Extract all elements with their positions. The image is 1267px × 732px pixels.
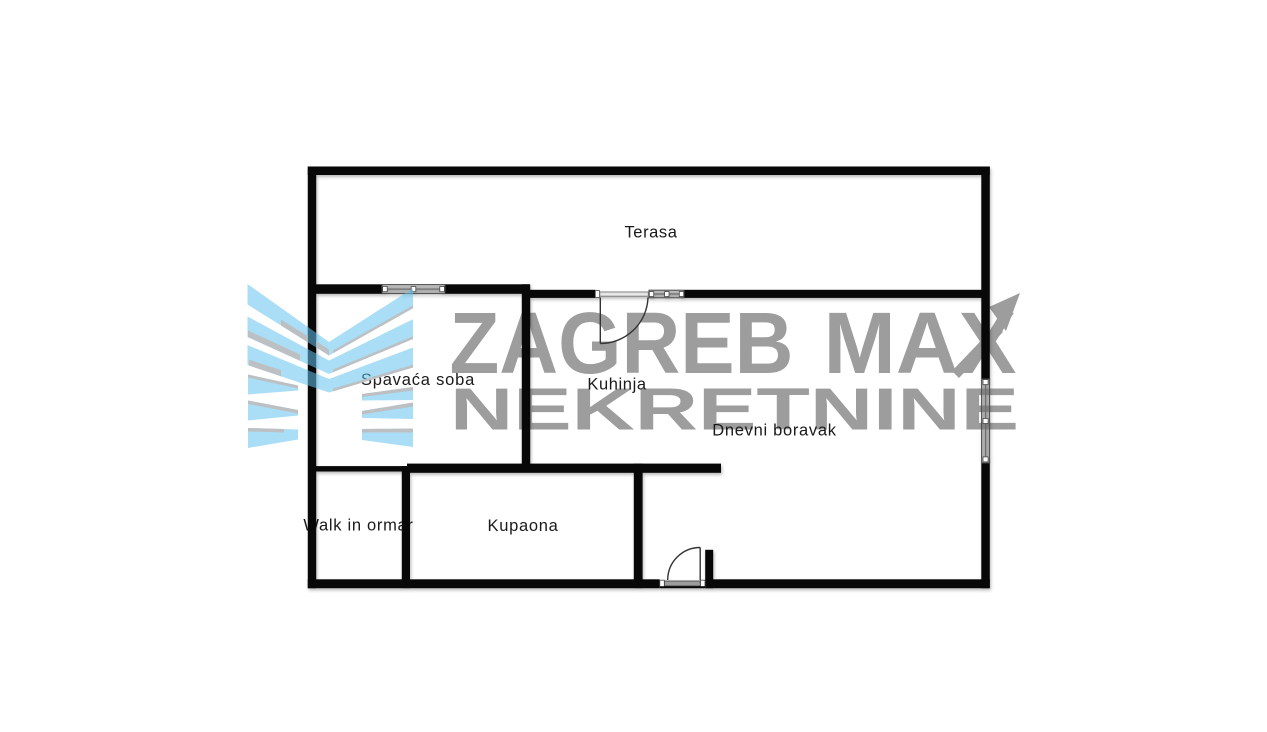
svg-text:Dnevni boravak: Dnevni boravak	[712, 421, 836, 439]
svg-text:Walk in ormar: Walk in ormar	[303, 516, 413, 534]
svg-text:Terasa: Terasa	[624, 224, 677, 242]
svg-text:Kupaona: Kupaona	[488, 517, 559, 535]
svg-text:Kuhinja: Kuhinja	[587, 376, 646, 394]
